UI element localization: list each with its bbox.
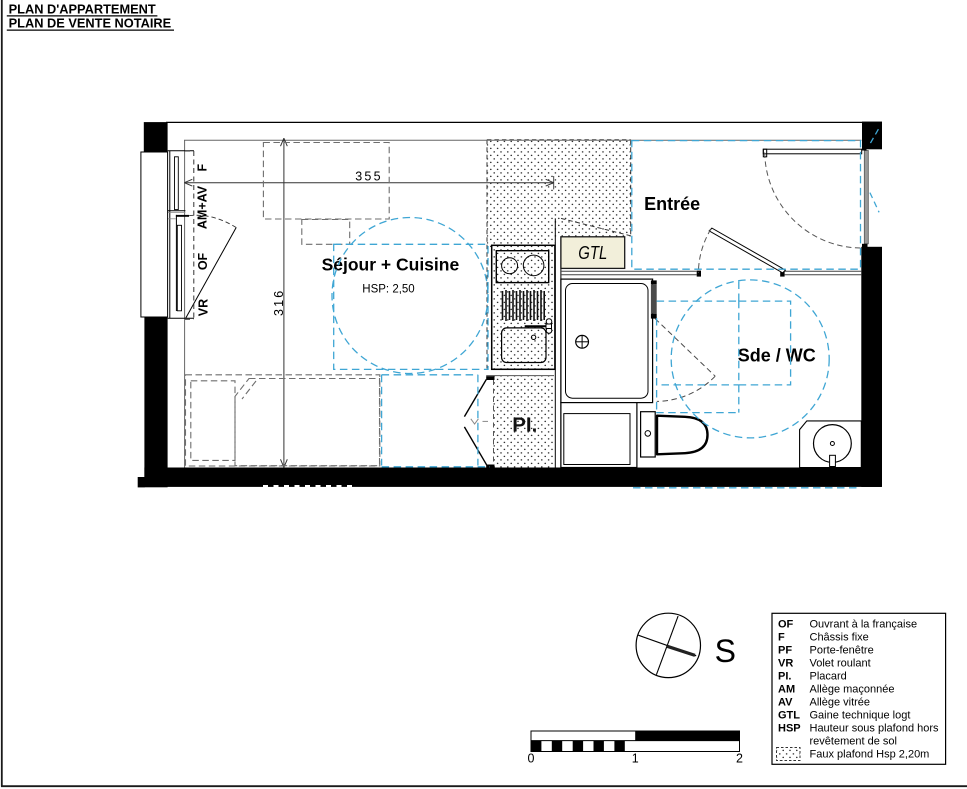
- svg-text:Placard: Placard: [810, 671, 847, 683]
- svg-text:AM: AM: [778, 684, 795, 696]
- svg-text:PI.: PI.: [778, 671, 791, 683]
- svg-text:F: F: [196, 164, 210, 172]
- svg-text:VR: VR: [197, 299, 211, 316]
- svg-text:GTL: GTL: [578, 242, 607, 263]
- svg-text:0: 0: [528, 752, 535, 766]
- svg-text:AV: AV: [778, 697, 793, 709]
- svg-text:Châssis fixe: Châssis fixe: [810, 632, 869, 644]
- svg-text:S: S: [715, 633, 736, 669]
- svg-text:Entrée: Entrée: [644, 194, 700, 214]
- svg-text:1: 1: [632, 752, 639, 766]
- svg-text:355: 355: [355, 169, 382, 183]
- svg-text:GTL: GTL: [778, 710, 800, 722]
- svg-text:Gaine technique logt: Gaine technique logt: [810, 710, 911, 722]
- svg-text:PF: PF: [778, 645, 792, 657]
- svg-text:Faux plafond Hsp 2,20m: Faux plafond Hsp 2,20m: [810, 749, 930, 761]
- svg-text:PI.: PI.: [512, 413, 537, 436]
- svg-text:PLAN D'APPARTEMENT: PLAN D'APPARTEMENT: [9, 2, 156, 17]
- svg-text:OF: OF: [196, 252, 210, 270]
- svg-text:Volet roulant: Volet roulant: [810, 658, 871, 670]
- svg-text:Ouvrant à la française: Ouvrant à la française: [810, 619, 918, 631]
- svg-text:316: 316: [272, 289, 286, 316]
- svg-text:PLAN DE VENTE NOTAIRE: PLAN DE VENTE NOTAIRE: [9, 16, 172, 31]
- svg-text:revêtement de sol: revêtement de sol: [810, 736, 897, 748]
- svg-text:Hauteur sous plafond hors: Hauteur sous plafond hors: [810, 723, 940, 735]
- svg-text:2: 2: [736, 752, 743, 766]
- svg-text:Allège vitrée: Allège vitrée: [810, 697, 871, 709]
- svg-text:VR: VR: [778, 658, 793, 670]
- svg-text:AM+AV: AM+AV: [196, 185, 210, 229]
- svg-text:HSP: HSP: [778, 723, 801, 735]
- svg-text:Porte-fenêtre: Porte-fenêtre: [810, 645, 874, 657]
- svg-text:F: F: [778, 632, 785, 644]
- svg-text:HSP: 2,50: HSP: 2,50: [362, 283, 414, 295]
- svg-text:Sde / WC: Sde / WC: [738, 345, 816, 365]
- svg-text:Séjour + Cuisine: Séjour + Cuisine: [322, 254, 460, 274]
- svg-text:OF: OF: [778, 619, 794, 631]
- svg-text:Allège maçonnée: Allège maçonnée: [810, 684, 895, 696]
